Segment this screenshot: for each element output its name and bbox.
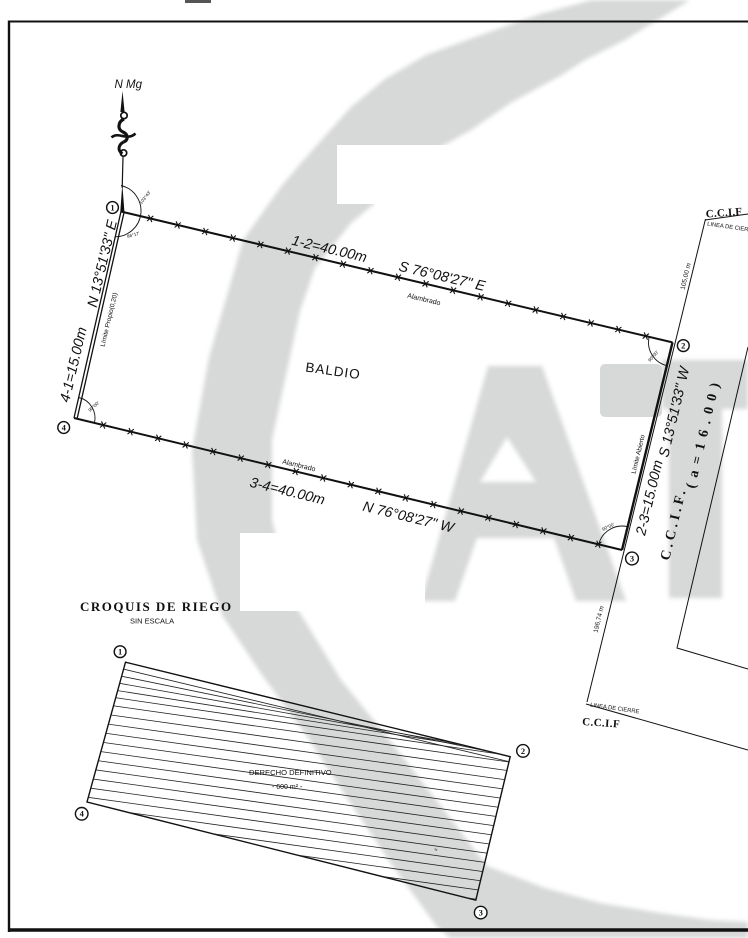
svg-text:3: 3 [479, 908, 483, 918]
svg-text:2: 2 [521, 746, 525, 756]
svg-text:4: 4 [80, 809, 85, 819]
svg-text:3: 3 [630, 553, 634, 563]
svg-text:CROQUIS DE RIEGO: CROQUIS DE RIEGO [80, 599, 233, 614]
svg-text:C.C.I.F: C.C.I.F [705, 206, 742, 221]
svg-text:2: 2 [681, 341, 685, 351]
svg-text:N Mg: N Mg [115, 79, 143, 91]
svg-text:1: 1 [110, 202, 114, 212]
svg-text:DERECHO DEFINITIVO: DERECHO DEFINITIVO [249, 768, 332, 777]
svg-text:4: 4 [62, 422, 67, 432]
svg-text:SIN ESCALA: SIN ESCALA [130, 617, 174, 626]
svg-text:- 600 m² -: - 600 m² - [272, 784, 303, 791]
svg-text:1: 1 [118, 647, 122, 657]
